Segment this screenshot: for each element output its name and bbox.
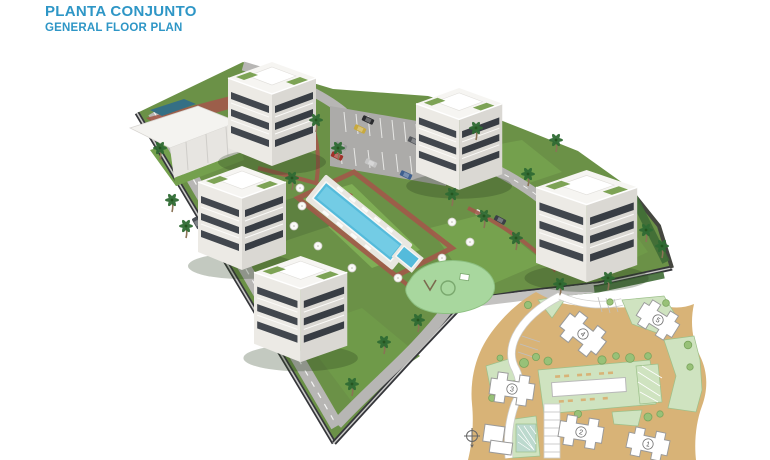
apartment-block-topright [406, 88, 512, 199]
inset-clubhouse-pool [516, 424, 536, 452]
inset-plaza [636, 364, 662, 404]
inset-2d-plan: 4 5 3 2 1 [464, 292, 706, 460]
apartment-block-right [525, 170, 649, 292]
apartment-block-left [188, 166, 296, 279]
apartment-block-bottom [243, 256, 357, 371]
apartment-block-topleft [218, 62, 326, 175]
site-plan-graphic: 4 5 3 2 1 [0, 0, 770, 460]
